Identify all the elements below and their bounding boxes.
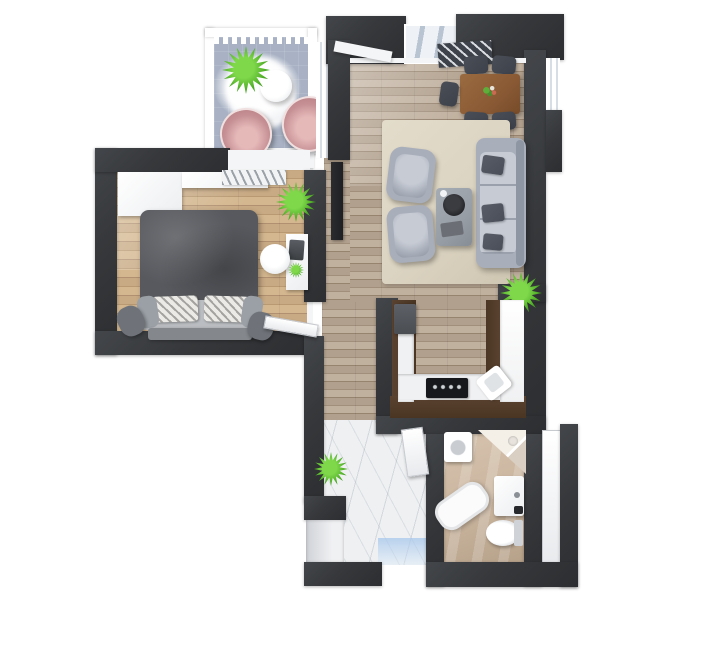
living-wall-left — [328, 40, 350, 160]
washing-machine — [444, 432, 472, 462]
desk-chair — [260, 244, 290, 274]
vanity-towel — [514, 506, 523, 514]
right-wall-bump — [546, 110, 562, 172]
dining-chair-top-1 — [463, 55, 488, 75]
hall-wall-block — [304, 496, 346, 520]
clothes-rack — [222, 170, 286, 185]
balcony-plant — [222, 46, 270, 94]
right-window — [546, 58, 560, 112]
flower-centerpiece — [481, 84, 499, 98]
bath-side-door — [542, 430, 562, 566]
wall-tv — [331, 162, 343, 240]
coffee-table-cup — [440, 190, 447, 197]
bath-wall-bottom — [426, 562, 578, 587]
cooktop — [426, 378, 468, 398]
hall-wood-floor — [322, 302, 378, 424]
dining-chair-top-2 — [491, 55, 516, 75]
balcony-railing-ornament — [214, 37, 308, 44]
vanity-faucet — [514, 492, 520, 498]
apartment-floor-plan — [0, 0, 720, 665]
sofa-pillow-3 — [482, 233, 503, 251]
bedroom-plant — [276, 182, 316, 222]
bedroom-window-threshold — [228, 150, 310, 170]
hall-wall-bottom — [304, 562, 382, 586]
sofa-pillow-1 — [481, 155, 505, 176]
balcony-side-table — [260, 70, 292, 102]
bedroom-wall-left — [95, 148, 117, 355]
bedroom-wall-top — [95, 148, 230, 172]
desk-plant — [288, 262, 304, 278]
armchair-2 — [386, 204, 437, 264]
balcony-railing-left — [205, 28, 214, 158]
toilet-tank — [514, 520, 523, 546]
hallway-plant — [314, 452, 348, 486]
coffee-table-tray — [443, 194, 465, 216]
balcony-railing-top — [205, 28, 317, 37]
armchair-1 — [385, 145, 437, 204]
dining-chair-left — [438, 81, 459, 107]
living-wall-right — [524, 50, 546, 434]
kitchen-appliance — [394, 304, 416, 334]
bed-foot-bench — [148, 328, 252, 340]
sofa-pillow-2 — [481, 203, 505, 223]
kitchen-floor — [414, 302, 490, 380]
sofa-back — [516, 140, 524, 266]
entry-door-recess — [306, 520, 344, 564]
bed-duvet — [140, 210, 258, 306]
entry-light-glow — [378, 538, 430, 565]
shower-head — [508, 436, 518, 446]
laptop — [288, 240, 304, 261]
